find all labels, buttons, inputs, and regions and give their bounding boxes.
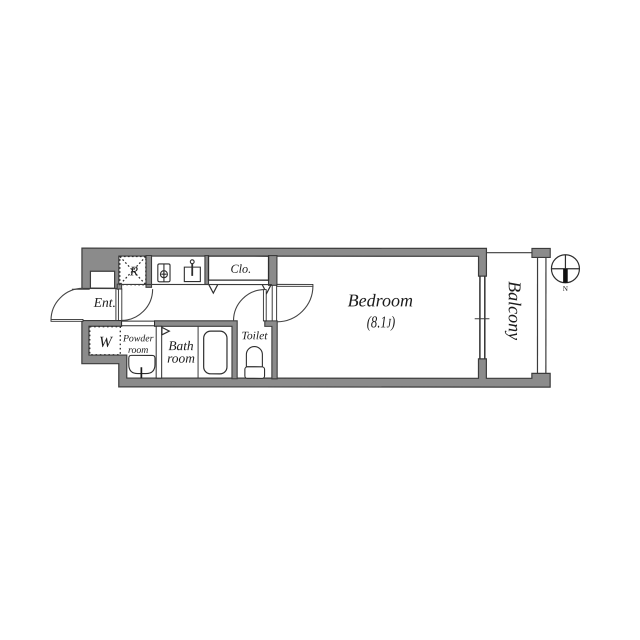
svg-text:W: W xyxy=(99,334,114,351)
svg-text:Balcony: Balcony xyxy=(505,281,525,340)
svg-text:Bedroom: Bedroom xyxy=(348,290,413,310)
svg-text:Powder: Powder xyxy=(122,333,154,344)
svg-text:room: room xyxy=(128,345,148,356)
svg-text:(8.1J): (8.1J) xyxy=(367,312,396,331)
svg-text:N: N xyxy=(563,285,569,293)
svg-text:Toilet: Toilet xyxy=(241,330,268,342)
svg-text:Ent.: Ent. xyxy=(93,295,116,310)
svg-text:room: room xyxy=(167,351,195,366)
svg-text:R: R xyxy=(129,263,138,278)
svg-text:Clo.: Clo. xyxy=(230,262,251,276)
